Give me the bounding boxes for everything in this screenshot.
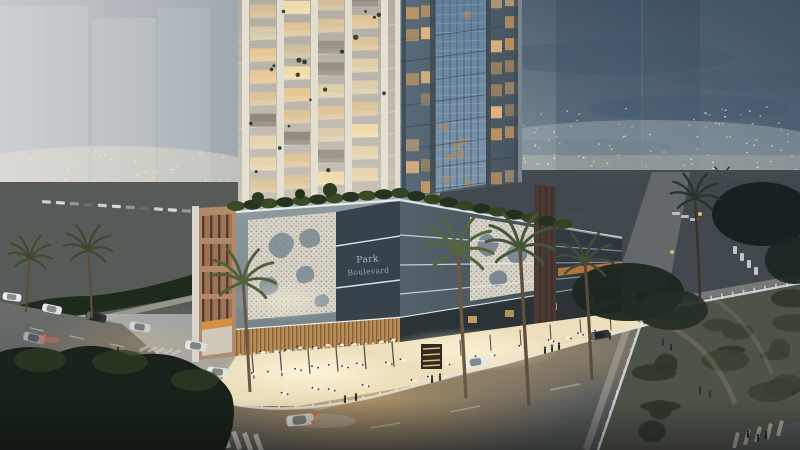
lit-shelf-corner <box>421 344 442 369</box>
pedestrian <box>544 346 546 353</box>
perforated-texture <box>470 217 538 301</box>
annex-white-pilaster <box>192 206 199 362</box>
pedestrian <box>670 344 672 351</box>
building-sign-line1: Park <box>356 254 379 266</box>
tower <box>238 0 522 220</box>
streetlight-glow <box>670 250 674 254</box>
pedestrian <box>662 339 664 346</box>
pedestrian <box>609 333 611 340</box>
bottom-vignette <box>0 398 800 450</box>
pedestrian <box>551 344 553 351</box>
streetlight-glow <box>698 212 702 216</box>
pedestrian <box>558 342 560 349</box>
pedestrian <box>439 373 441 381</box>
terracotta-annex <box>192 206 236 362</box>
pedestrian <box>431 375 433 383</box>
pedestrian <box>709 390 711 398</box>
render-image: Park Boulevard <box>0 0 800 450</box>
tower-right-edge <box>518 0 522 190</box>
pedestrian <box>699 386 701 394</box>
annex-base <box>202 326 232 356</box>
